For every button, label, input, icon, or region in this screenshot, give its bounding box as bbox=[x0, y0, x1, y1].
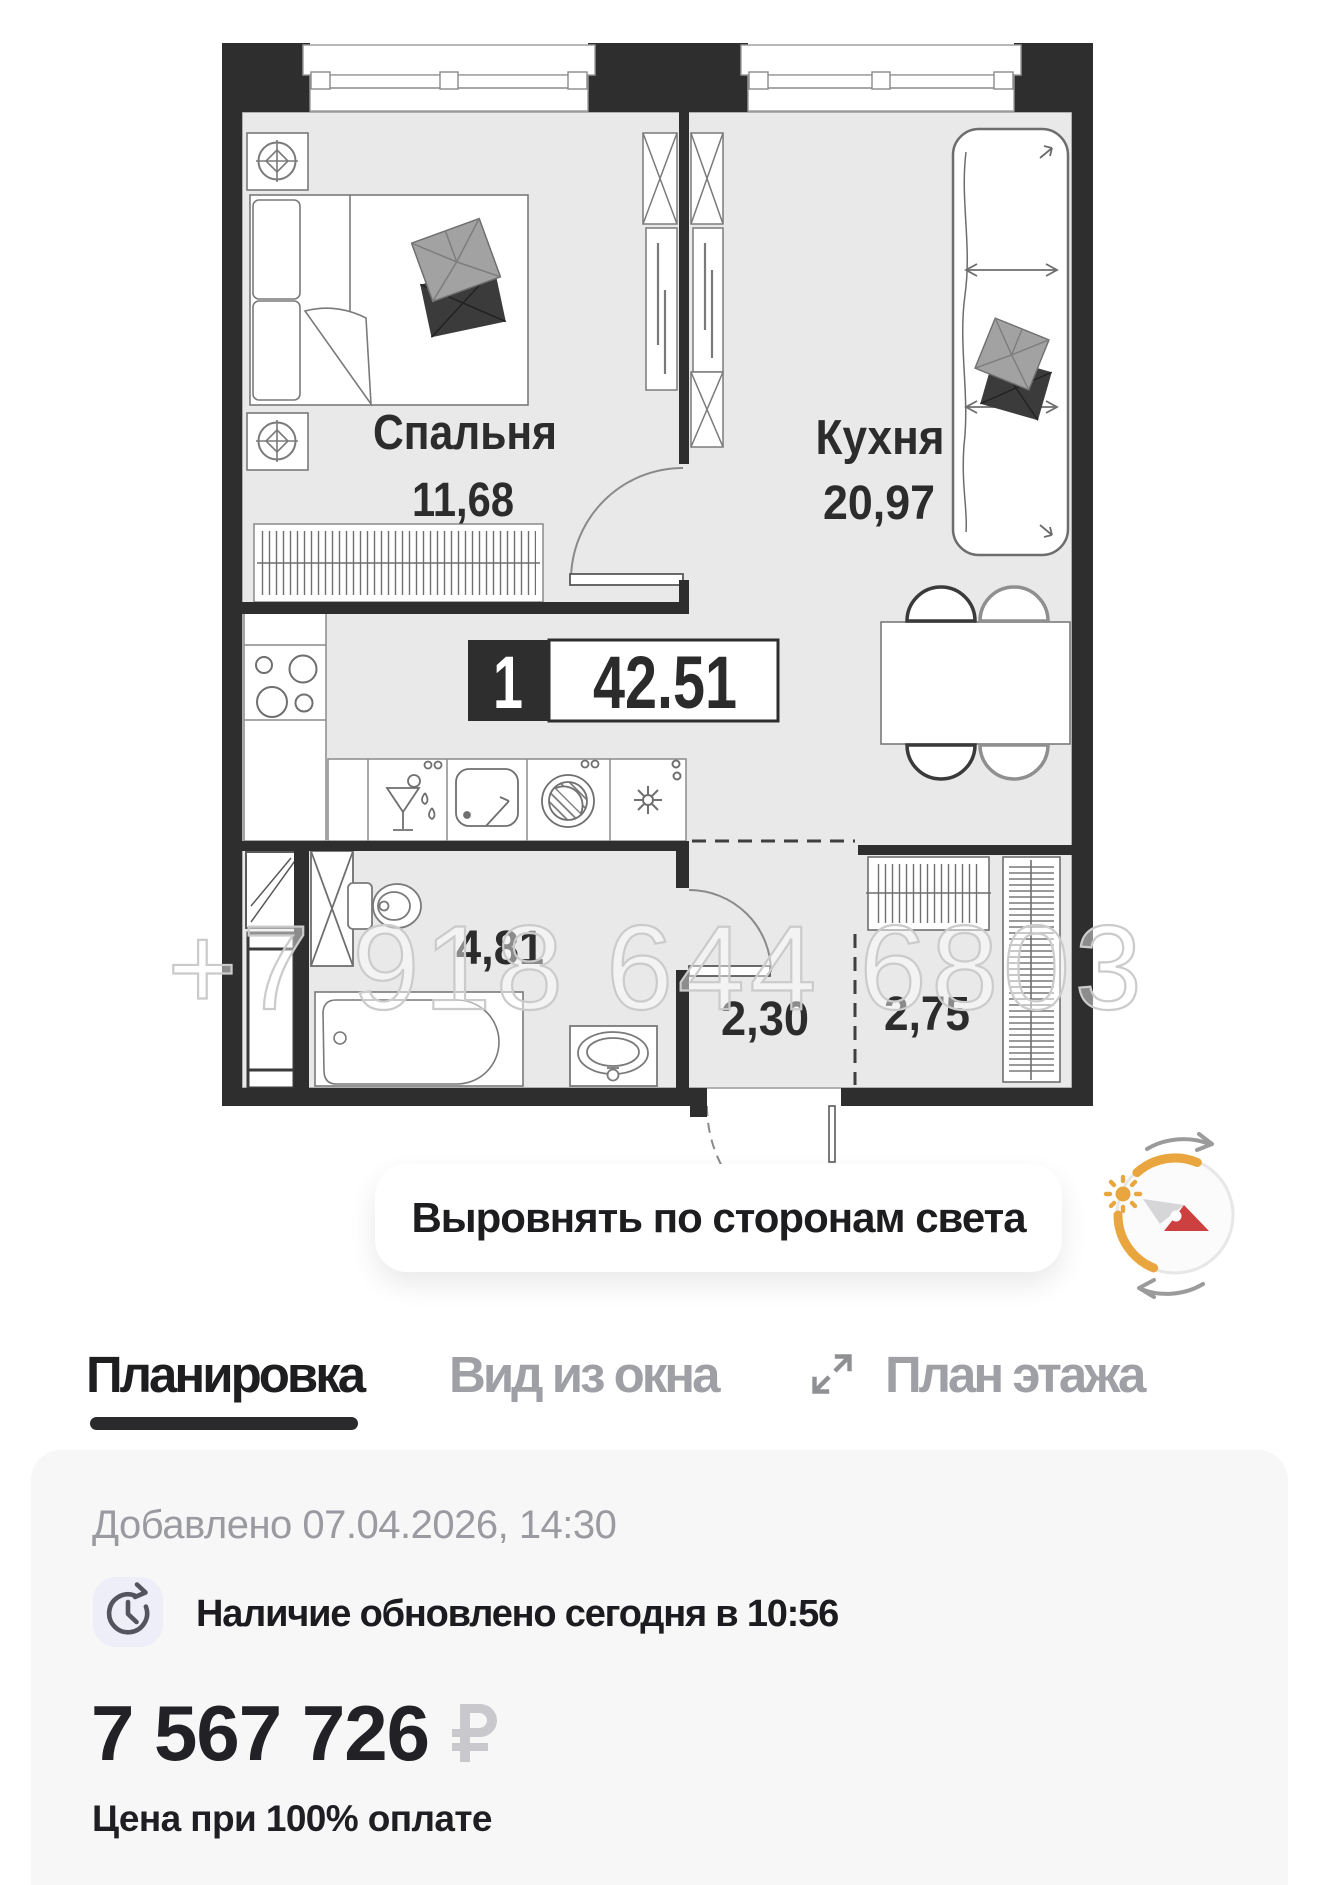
svg-text:Спальня: Спальня bbox=[373, 406, 557, 460]
svg-text:42.51: 42.51 bbox=[593, 641, 737, 724]
svg-text:20,97: 20,97 bbox=[823, 477, 935, 530]
svg-text:11,68: 11,68 bbox=[412, 474, 514, 527]
svg-text:+7 918 644 6803: +7 918 644 6803 bbox=[167, 901, 1146, 1035]
svg-text:1: 1 bbox=[493, 641, 523, 724]
svg-text:Кухня: Кухня bbox=[816, 411, 945, 465]
